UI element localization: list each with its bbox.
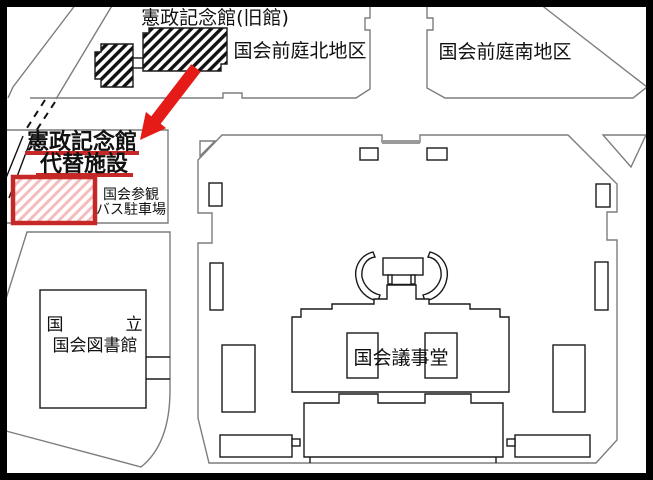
- small-building: [209, 183, 222, 206]
- diet-entrance-pillar: [411, 275, 415, 284]
- diet-area-map: 憲政記念館(旧館) 国会前庭北地区 国会前庭南地区 憲政記念館 代替施設 国会参…: [0, 0, 653, 480]
- diet-south-wing: [304, 394, 503, 457]
- library-label-ritsu: 立: [126, 315, 143, 335]
- north-garden-label: 国会前庭北地区: [233, 40, 366, 62]
- south-west-building: [220, 435, 292, 457]
- small-building: [596, 184, 610, 207]
- map-svg: 憲政記念館(旧館) 国会前庭北地区 国会前庭南地区 憲政記念館 代替施設 国会参…: [0, 0, 653, 480]
- guard-post-west: [360, 148, 378, 160]
- west-annex-building: [222, 345, 255, 412]
- south-east-building: [515, 435, 590, 457]
- guard-post-east: [427, 148, 447, 160]
- old-hall-main-building: [143, 28, 227, 71]
- small-building: [595, 262, 608, 310]
- diet-entrance-pillar: [388, 275, 392, 284]
- library-label-kuni: 国: [47, 315, 64, 335]
- south-west-building-tab: [292, 439, 300, 446]
- bus-parking-label-line2: バス駐車場: [96, 201, 166, 218]
- diet-entrance-canopy: [383, 258, 423, 275]
- old-hall-west-building: [95, 44, 133, 87]
- south-east-building-tab: [507, 439, 515, 446]
- diet-building-label: 国会議事堂: [353, 347, 448, 369]
- substitute-facility-label-line2: 代替施設: [39, 151, 129, 177]
- small-building: [210, 263, 223, 310]
- old-hall-label: 憲政記念館(旧館): [141, 6, 289, 29]
- east-annex-building: [553, 345, 585, 412]
- old-hall-connector: [133, 58, 143, 68]
- south-garden-label: 国会前庭南地区: [438, 41, 571, 63]
- library-label-line2: 国会図書館: [53, 336, 138, 356]
- bus-parking-label-line1: 国会参観: [103, 186, 159, 203]
- substitute-facility-site: [13, 177, 95, 223]
